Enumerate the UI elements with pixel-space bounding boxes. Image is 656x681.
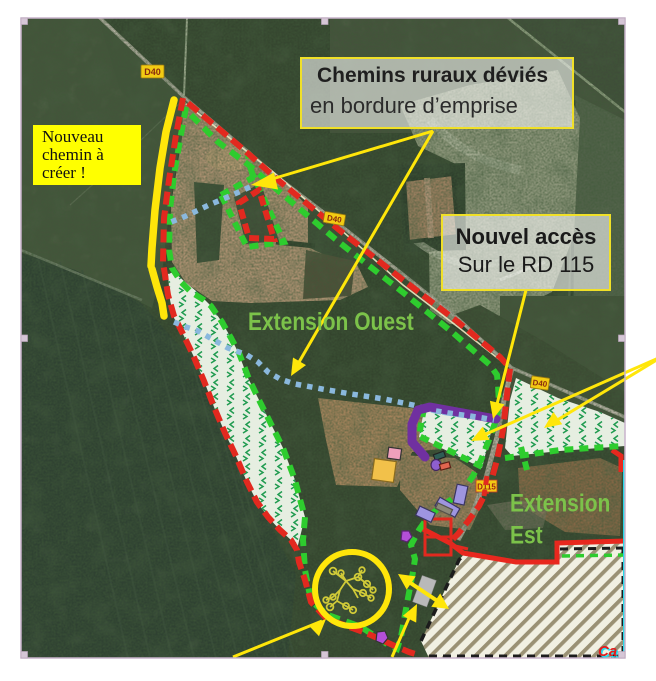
svg-text:D40: D40 xyxy=(144,67,161,77)
